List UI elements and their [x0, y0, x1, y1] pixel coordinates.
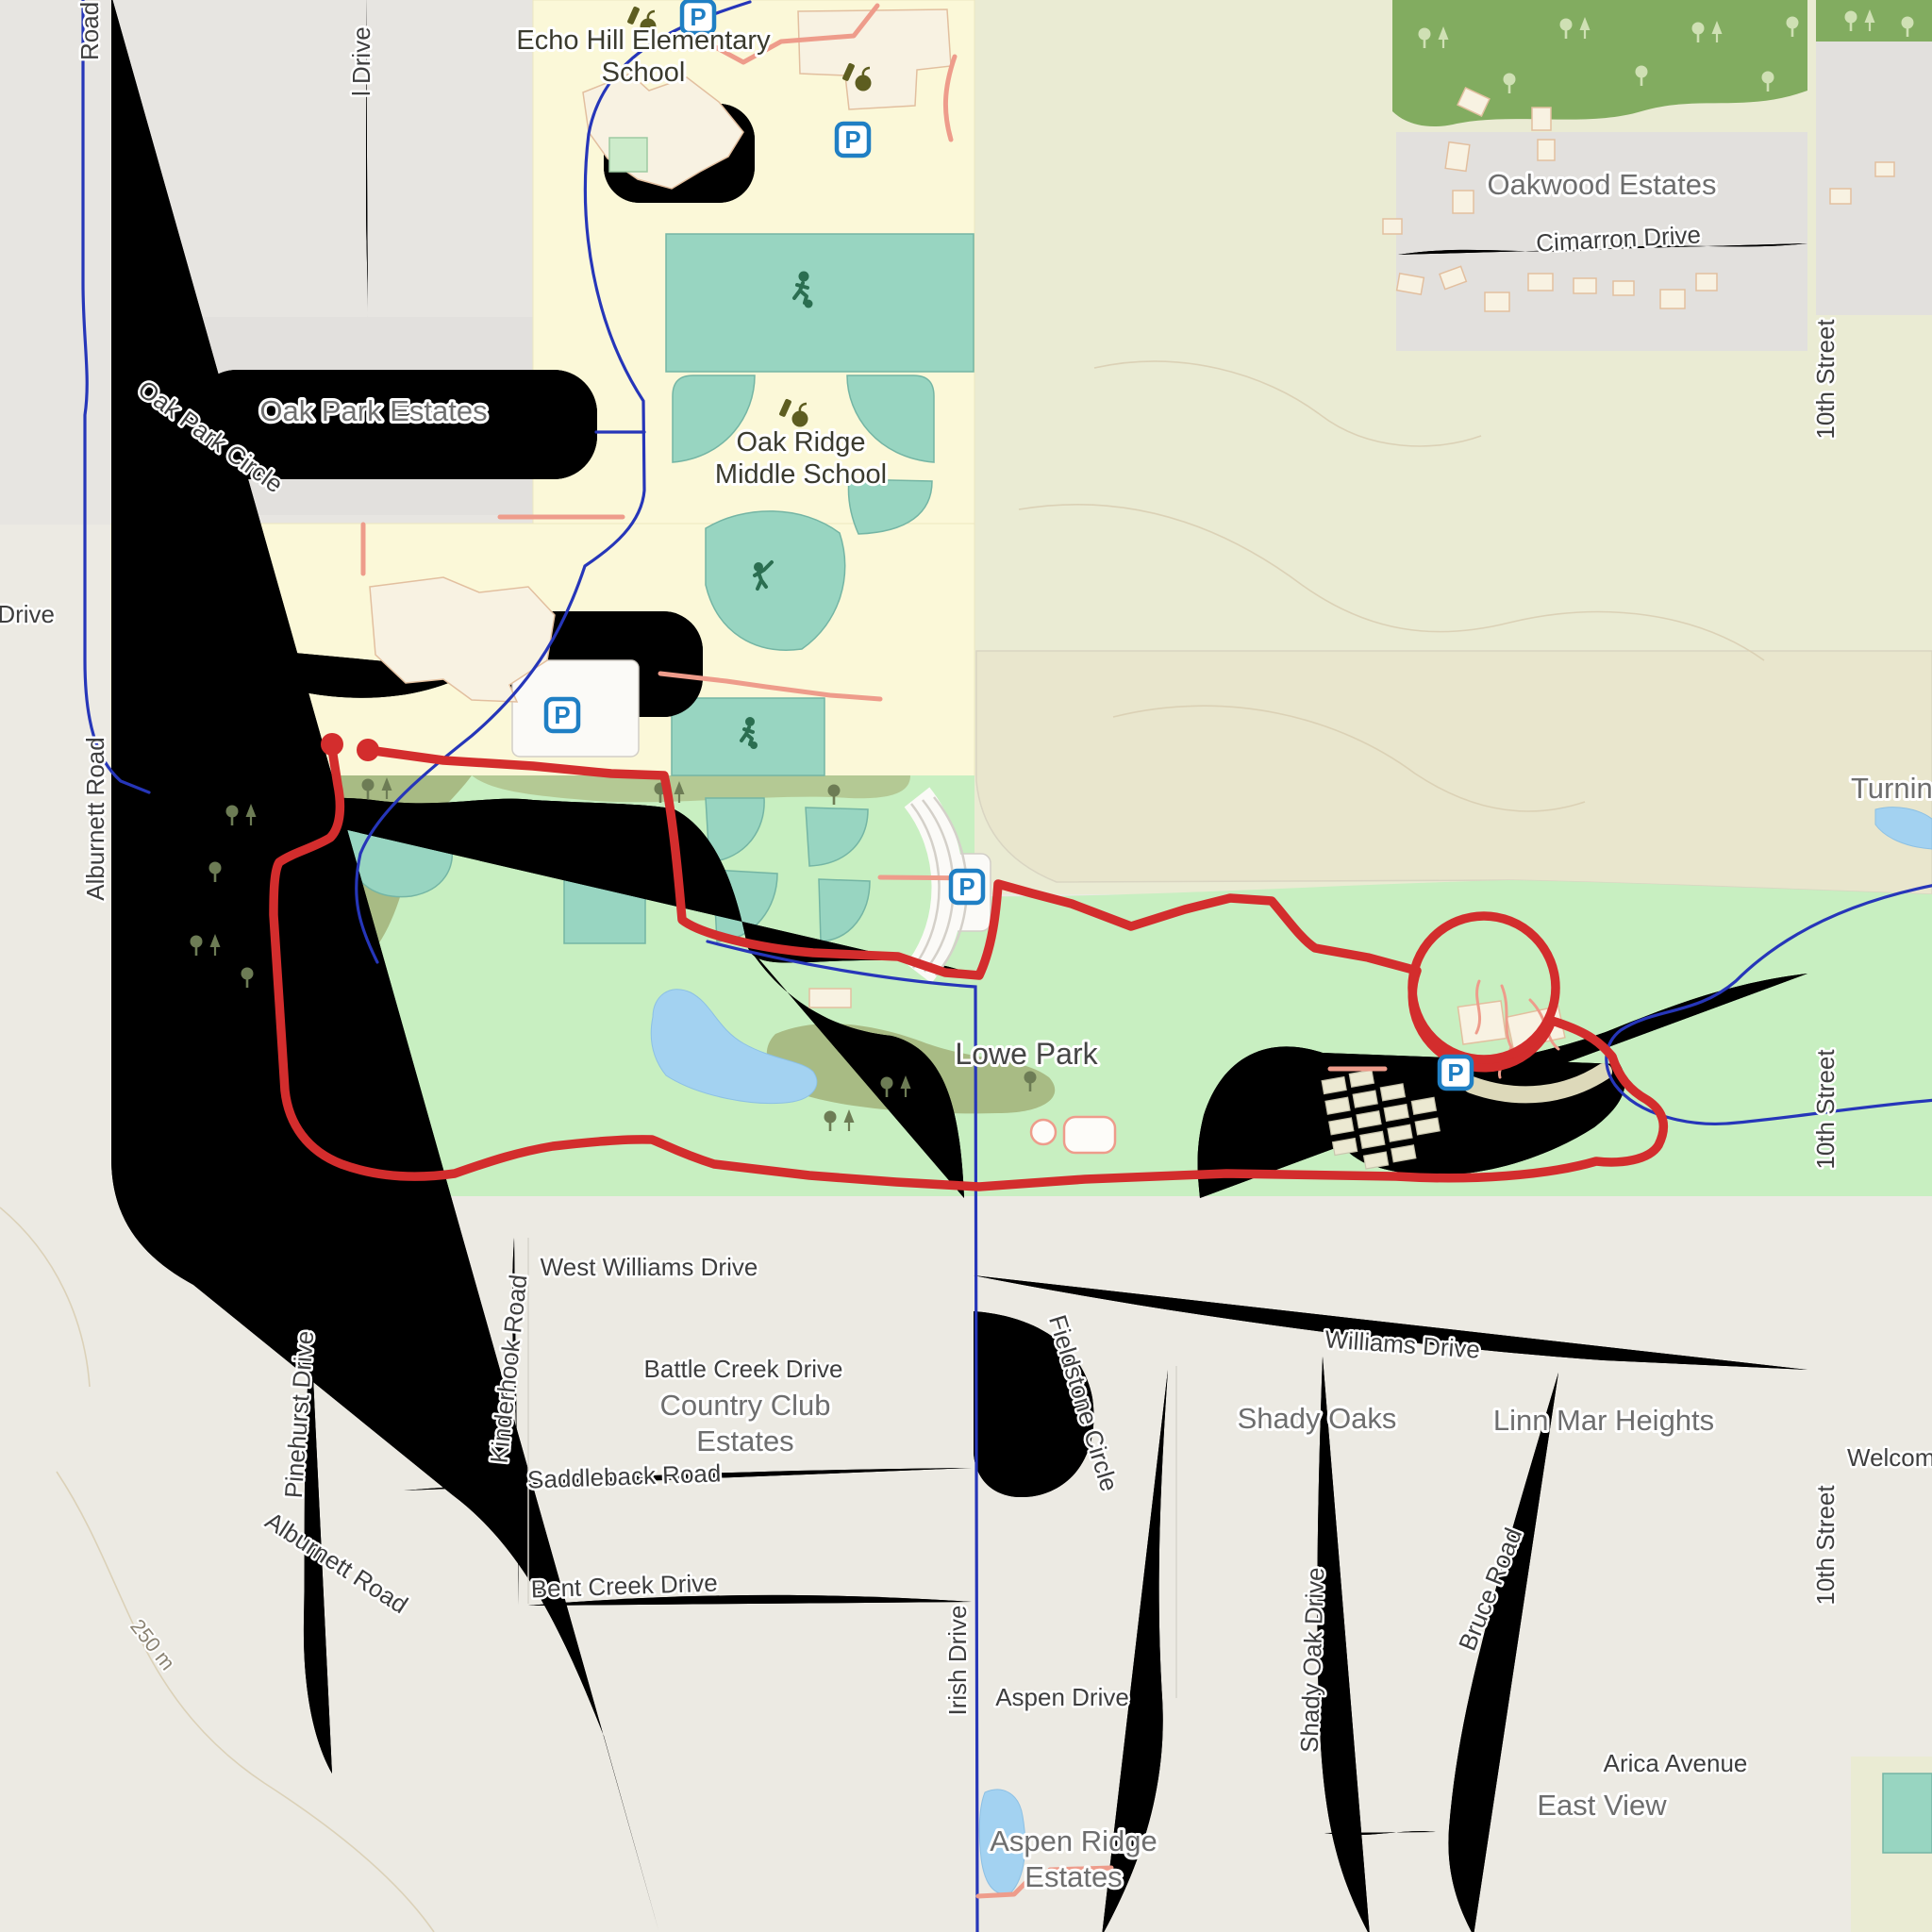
soccer-field-large	[666, 234, 974, 372]
label-battle-creek-drive: Battle Creek Drive	[644, 1355, 843, 1383]
label-echo-hill-line1: Echo Hill Elementary	[516, 25, 771, 56]
parking-icon: P	[951, 871, 983, 903]
label-east-view: East View	[1537, 1789, 1667, 1822]
label-lowe-park: Lowe Park	[955, 1037, 1098, 1071]
route-endpoint	[357, 739, 379, 761]
parking-icon: P	[837, 124, 869, 156]
label-aspen-ridge-line2: Estates	[1024, 1860, 1122, 1893]
label-linn-mar-heights: Linn Mar Heights	[1493, 1404, 1714, 1437]
svg-text:P: P	[1447, 1058, 1463, 1087]
label-10th-street: 10th Street	[1811, 1485, 1840, 1606]
label-oak-park-estates: Oak Park Estates	[259, 394, 487, 427]
parking-icon: P	[1440, 1057, 1472, 1089]
label-country-club-line2: Estates	[696, 1424, 793, 1457]
label-drive-fragment: Drive	[0, 600, 55, 628]
label-irish-drive: Irish Drive	[943, 1605, 972, 1715]
label-country-club-line1: Country Club	[660, 1389, 831, 1422]
label-aspen-drive: Aspen Drive	[995, 1683, 1129, 1711]
svg-text:P: P	[844, 125, 860, 154]
park-shelter	[809, 989, 851, 1008]
label-aspen-ridge-line1: Aspen Ridge	[990, 1824, 1158, 1857]
label-turning-fragment: Turning	[1851, 772, 1932, 805]
svg-text:P: P	[958, 873, 974, 901]
label-echo-hill-line2: School	[602, 58, 686, 88]
label-l-drive-fragment: l Drive	[347, 26, 375, 96]
label-oakwood-estates: Oakwood Estates	[1488, 168, 1717, 201]
label-arica-avenue: Arica Avenue	[1604, 1749, 1748, 1777]
label-road-fragment: Road	[75, 2, 104, 60]
label-10th-street: 10th Street	[1811, 1049, 1840, 1170]
label-west-williams-drive: West Williams Drive	[541, 1253, 758, 1281]
label-oak-ridge-line2: Middle School	[715, 459, 887, 490]
label-oak-ridge-line1: Oak Ridge	[736, 427, 865, 458]
label-10th-street: 10th Street	[1811, 319, 1840, 440]
svg-text:P: P	[554, 701, 570, 729]
label-shady-oaks: Shady Oaks	[1238, 1402, 1397, 1435]
label-welcome-fragment: Welcome	[1847, 1443, 1932, 1472]
parking-icon: P	[546, 699, 578, 731]
route-endpoint	[321, 733, 343, 756]
label-alburnett-road: Alburnett Road	[81, 737, 109, 900]
bottom-right-green	[1851, 1757, 1932, 1932]
map-canvas[interactable]: P P P P P Echo Hill Elementary School Oa…	[0, 0, 1932, 1932]
